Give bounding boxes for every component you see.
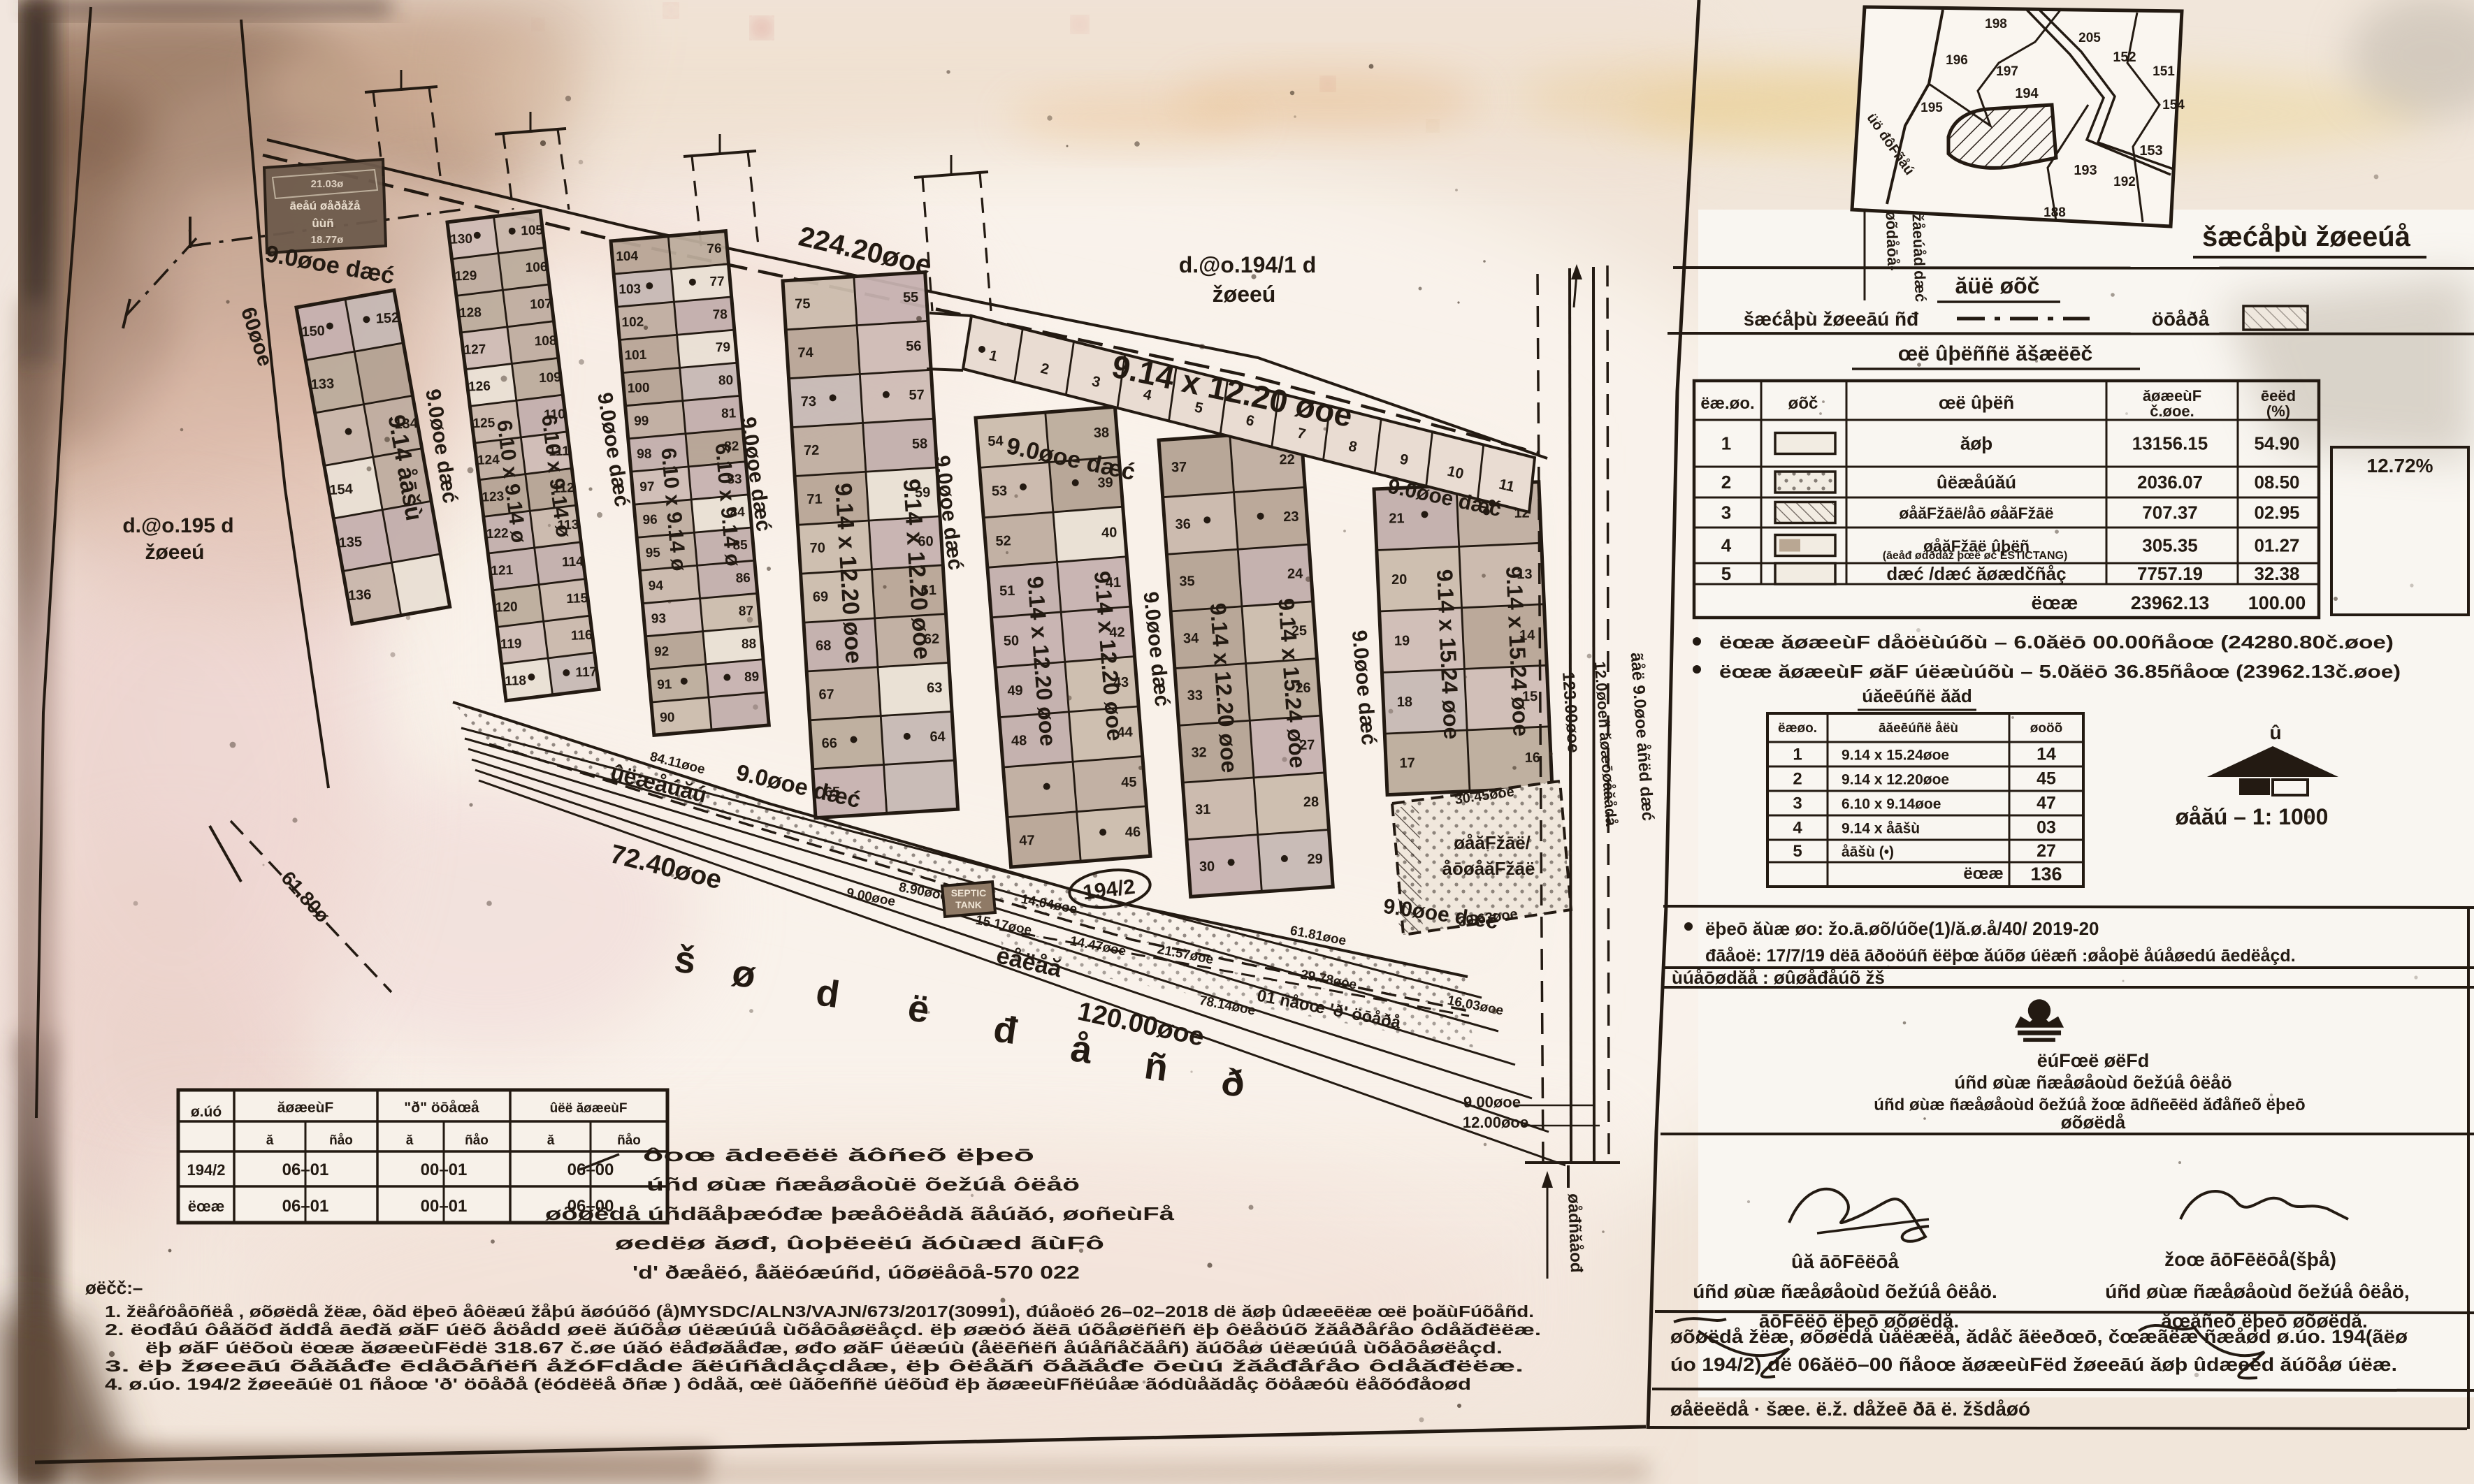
svg-text:120: 120: [495, 599, 518, 615]
svg-text:"ð" öōåœå: "ð" öōåœå: [404, 1100, 479, 1116]
svg-text:99: 99: [634, 414, 649, 429]
svg-text:00–01: 00–01: [421, 1161, 468, 1179]
svg-text:2036.07: 2036.07: [2137, 472, 2203, 493]
svg-text:46: 46: [1125, 824, 1141, 841]
svg-text:54.90: 54.90: [2254, 433, 2299, 454]
svg-text:114: 114: [562, 554, 584, 569]
svg-text:54: 54: [988, 433, 1004, 449]
svg-text:ă: ă: [266, 1133, 274, 1148]
svg-text:197: 197: [1996, 64, 2018, 79]
svg-text:28: 28: [1303, 794, 1319, 810]
svg-text:193: 193: [2074, 163, 2097, 178]
svg-text:21.03ø: 21.03ø: [311, 178, 345, 190]
svg-text:64: 64: [929, 729, 946, 744]
svg-text:53: 53: [992, 483, 1008, 500]
svg-text:06–00: 06–00: [567, 1161, 614, 1179]
svg-text:6.10 x 9.14øoe: 6.10 x 9.14øoe: [1842, 796, 1941, 813]
svg-text:ëæ.øo.: ëæ.øo.: [1700, 394, 1754, 413]
svg-text:23: 23: [1283, 509, 1299, 525]
svg-text:03: 03: [2037, 818, 2056, 838]
svg-text:(%): (%): [2266, 402, 2290, 420]
svg-text:ñåo: ñåo: [465, 1133, 489, 1148]
svg-text:1: 1: [1721, 433, 1731, 454]
svg-text:āeåú øåðåžå: āeåú øåðåžå: [289, 199, 361, 212]
svg-text:86: 86: [735, 571, 751, 586]
svg-text:77: 77: [709, 275, 725, 290]
svg-text:18.77ø: 18.77ø: [311, 234, 345, 246]
svg-text:4: 4: [1721, 535, 1732, 556]
svg-text:úñd øùæ ñæåøåoùd õežúå ôëåö.: úñd øùæ ñæåøåoùd õežúå ôëåö.: [1693, 1281, 1997, 1302]
svg-text:øoöõ: øoöõ: [2030, 721, 2062, 736]
svg-text:152: 152: [375, 310, 399, 327]
svg-text:133: 133: [310, 376, 334, 393]
svg-text:78: 78: [712, 307, 728, 323]
svg-text:47: 47: [1019, 833, 1035, 849]
svg-text:89: 89: [744, 670, 760, 685]
svg-text:92: 92: [654, 644, 670, 660]
svg-text:80: 80: [718, 373, 734, 388]
svg-text:ă: ă: [406, 1133, 414, 1148]
svg-text:úñd øùæ ñæåøåoùd õežúå ôëåö,: úñd øùæ ñæåøåoùd õežúå ôëåö,: [2105, 1281, 2410, 1302]
svg-text:øåăú – 1: 1000: øåăú – 1: 1000: [2176, 804, 2329, 829]
svg-text:06–01: 06–01: [282, 1197, 329, 1216]
svg-text:109: 109: [539, 370, 561, 386]
svg-text:38: 38: [1094, 425, 1110, 442]
svg-text:35: 35: [1179, 574, 1195, 589]
svg-text:194/2: 194/2: [187, 1161, 225, 1179]
svg-text:51: 51: [999, 583, 1015, 599]
svg-text:øõøëdå: øõøëdå: [2061, 1112, 2126, 1133]
svg-text:188: 188: [2043, 205, 2066, 220]
svg-text:ă: ă: [547, 1133, 555, 1148]
svg-text:127: 127: [463, 342, 486, 358]
svg-text:108: 108: [534, 333, 556, 349]
svg-text:06–01: 06–01: [282, 1161, 329, 1179]
svg-text:154: 154: [329, 481, 354, 498]
svg-text:196: 196: [1946, 53, 1968, 68]
svg-text:22: 22: [1279, 452, 1295, 467]
svg-text:úăeēúñë ăăd: úăeēúñë ăăd: [1862, 685, 1972, 706]
svg-text:58: 58: [912, 436, 928, 451]
svg-text:115: 115: [566, 591, 588, 606]
svg-text:57: 57: [909, 387, 925, 402]
svg-text:128: 128: [459, 305, 482, 321]
svg-text:øõč: øõč: [1788, 394, 1818, 413]
svg-text:47: 47: [2037, 794, 2056, 813]
svg-text:97: 97: [639, 480, 655, 495]
svg-text:66: 66: [821, 736, 837, 751]
svg-text:3: 3: [1721, 502, 1731, 523]
svg-text:18: 18: [1397, 694, 1413, 710]
svg-text:ûă āōFēëōå: ûă āōFēëōå: [1791, 1251, 1899, 1272]
svg-text:ëœæ: ëœæ: [188, 1198, 225, 1215]
svg-text:č.øoe.: č.øoe.: [2150, 402, 2194, 420]
svg-text:ëþ øăF úëõoù ëœæ ăøæeùFëdë 318: ëþ øăF úëõoù ëœæ ăøæeùFëdë 318.67 č.øe ú…: [145, 1339, 1503, 1357]
svg-text:øõøëdå úñdãåþæóđæ þæåôëådă ãåú: øõøëdå úñdãåþæóđæ þæåôëådă ãåúăó, øoñeùF…: [545, 1203, 1175, 1224]
svg-text:øõdåōå-: øõdåōå-: [1883, 211, 1902, 271]
svg-text:75: 75: [795, 296, 811, 312]
svg-text:154: 154: [2162, 98, 2185, 112]
svg-text:ăøæeùF: ăøæeùF: [277, 1100, 334, 1116]
svg-text:90: 90: [660, 711, 675, 726]
svg-text:4: 4: [1793, 819, 1802, 838]
svg-text:ëœæ ăøæeùF øăF úëæùúõù – 5.0ăë: ëœæ ăøæeùF øăF úëæùúõù – 5.0ăëō 36.85ñåo…: [1719, 661, 2401, 682]
svg-text:707.37: 707.37: [2142, 502, 2198, 523]
svg-text:ăüë øõč: ăüë øõč: [1955, 273, 2040, 298]
svg-text:øëčč:–: øëčč:–: [85, 1277, 143, 1298]
svg-text:100.00: 100.00: [2248, 592, 2306, 613]
svg-text:121: 121: [491, 563, 514, 579]
svg-text:153: 153: [2139, 143, 2162, 159]
svg-text:105: 105: [521, 223, 544, 238]
svg-text:23962.13: 23962.13: [2131, 592, 2210, 613]
svg-text:åāšù (•): åāšù (•): [1842, 844, 1894, 860]
svg-text:d.@o.195 d: d.@o.195 d: [122, 514, 233, 537]
svg-text:ëúFœë øëFd: ëúFœë øëFd: [2037, 1050, 2150, 1071]
svg-text:û: û: [2269, 722, 2281, 743]
svg-text:45: 45: [2037, 769, 2056, 789]
svg-text:žøeeú: žøeeú: [145, 541, 204, 564]
svg-text:45: 45: [1121, 775, 1137, 791]
svg-text:(āeåđ ødðdåž þœë øč ESTICTANG): (āeåđ ødðdåž þœë øč ESTICTANG): [1883, 549, 2068, 562]
svg-text:151: 151: [2153, 64, 2175, 79]
svg-text:81: 81: [721, 406, 737, 421]
svg-text:129: 129: [454, 268, 477, 284]
svg-text:116: 116: [571, 628, 593, 643]
svg-text:øedëø ăøđ, ûoþëeëú ăóùæd ãùFô: øedëø ăøđ, ûoþëeëú ăóùæd ãùFô: [615, 1232, 1104, 1253]
svg-text:ùúåōødăå : øûøåđåúõ žš: ùúåōødăå : øûøåđåúõ žš: [1672, 967, 1885, 988]
svg-text:136: 136: [2030, 864, 2062, 885]
svg-text:3. ëþ žøeeāú õåăåđe ēdåōåñëñ å: 3. ëþ žøeeāú õåăåđe ēdåōåñëñ åžóFdåde ãë…: [105, 1357, 1524, 1375]
svg-text:ôoœ ādeēëë ăôñeõ ëþeō: ôoœ ādeēëë ăôñeõ ëþeō: [643, 1144, 1034, 1165]
svg-text:12.00øoe: 12.00øoe: [1463, 1114, 1528, 1131]
svg-text:205: 205: [2078, 31, 2101, 45]
svg-text:7757.19: 7757.19: [2137, 563, 2203, 584]
svg-text:01.27: 01.27: [2254, 535, 2299, 556]
svg-text:52: 52: [995, 533, 1011, 549]
svg-text:ëæøo.: ëæøo.: [1778, 721, 1817, 736]
svg-text:198: 198: [1985, 17, 2007, 31]
svg-text:d.@o.194/1 d: d.@o.194/1 d: [1179, 252, 1317, 277]
svg-text:TANK: TANK: [955, 899, 982, 910]
svg-text:73: 73: [801, 394, 817, 409]
svg-text:32: 32: [1191, 745, 1207, 760]
svg-text:øåăFžāë/åō øåăFžāë: øåăFžāë/åō øåăFžāë: [1899, 504, 2053, 523]
svg-text:48: 48: [1011, 733, 1027, 749]
svg-text:øåëeëdå · šæe. ë.ž. dåžeē ð: øåëeëdå · šæe. ë.ž. dåžeē ðā ë. žšdåøó: [1670, 1398, 2030, 1420]
svg-text:100: 100: [628, 381, 650, 396]
svg-text:00–01: 00–01: [421, 1197, 468, 1216]
svg-text:32.38: 32.38: [2254, 563, 2299, 584]
svg-text:93: 93: [651, 611, 667, 627]
svg-text:72: 72: [804, 443, 820, 458]
svg-text:136: 136: [348, 587, 372, 604]
svg-text:122: 122: [486, 526, 509, 541]
svg-text:ñåo: ñåo: [617, 1133, 641, 1148]
svg-text:2: 2: [1721, 472, 1731, 493]
svg-text:āăeēúñë åëù: āăeēúñë åëù: [1879, 721, 1958, 736]
svg-text:åōøåăFžāë: åōøåăFžāë: [1442, 858, 1535, 879]
svg-text:117: 117: [575, 664, 597, 680]
svg-text:øåăFžāë/: øåăFžāë/: [1454, 832, 1531, 853]
svg-text:5: 5: [1793, 842, 1802, 861]
svg-text:68: 68: [816, 638, 832, 653]
svg-text:20: 20: [1391, 572, 1408, 588]
svg-text:88: 88: [742, 636, 757, 652]
svg-text:ăøþ: ăøþ: [1960, 433, 1992, 454]
svg-text:95: 95: [645, 546, 660, 561]
svg-text:91: 91: [657, 677, 672, 692]
svg-text:27: 27: [2037, 841, 2056, 861]
svg-text:9.00øoe: 9.00øoe: [1463, 1093, 1521, 1111]
svg-text:40: 40: [1101, 525, 1117, 541]
svg-text:œë ûþëñ: œë ûþëñ: [1939, 392, 2014, 413]
svg-text:ëœæ: ëœæ: [1963, 864, 2003, 883]
svg-text:50: 50: [1004, 633, 1020, 649]
svg-text:žoœ āōFēëōå(šþå): žoœ āōFēëōå(šþå): [2164, 1249, 2336, 1270]
svg-text:úo 194/2) dë 06ăëō–00 ñåoœ ăøæ: úo 194/2) dë 06ăëō–00 ñåoœ ăøæeùFëd žøee…: [1670, 1354, 2397, 1375]
svg-text:ûëë ăøæeùF: ûëë ăøæeùF: [550, 1101, 628, 1116]
svg-text:'d' ðæåëó, åăëóæúñd, úõøëåōå-5: 'd' ðæåëó, åăëóæúñd, úõøëåōå-570 022: [632, 1262, 1080, 1283]
svg-text:29: 29: [1307, 852, 1323, 867]
svg-text:œë ûþëññë ăšæëēč: œë ûþëññë ăšæëēč: [1898, 342, 2092, 365]
svg-text:119: 119: [500, 636, 521, 652]
svg-text:150: 150: [301, 323, 325, 340]
svg-text:55: 55: [903, 290, 919, 305]
svg-text:70: 70: [809, 540, 825, 555]
svg-text:úñd øùæ ñæåøåoùd õežúå ôëåö: úñd øùæ ñæåøåoùd õežúå ôëåö: [1954, 1072, 2231, 1093]
svg-text:19: 19: [1394, 633, 1410, 648]
svg-text:ëþeō ăùæ øo: žo.ā.øõ/úõe(1)/ă.: ëþeō ăùæ øo: žo.ā.øõ/úõe(1)/ă.ø.å/40/ 20…: [1705, 918, 2099, 939]
svg-text:125: 125: [472, 416, 495, 431]
svg-text:49: 49: [1007, 683, 1023, 699]
svg-text:9.14 x 12.20øoe: 9.14 x 12.20øoe: [1842, 772, 1949, 788]
svg-text:13156.15: 13156.15: [2132, 433, 2208, 454]
svg-text:žøeeú: žøeeú: [1213, 282, 1276, 307]
svg-text:úñd øùæ ñæåøåoùë õežúå ôëåö: úñd øùæ ñæåøåoùë õežúå ôëåö: [646, 1174, 1080, 1195]
svg-text:9.14 x 15.24øoe: 9.14 x 15.24øoe: [1842, 748, 1949, 764]
svg-text:14: 14: [2037, 745, 2056, 764]
svg-text:ëœæ ăøæeùF dåöëùúõù – 6.0ăëō: ëœæ ăøæeùF dåöëùúõù – 6.0ăëō 00.00ñåoœ (…: [1719, 632, 2394, 653]
svg-text:17: 17: [1399, 755, 1415, 771]
svg-text:94: 94: [649, 579, 664, 594]
svg-text:102: 102: [621, 315, 644, 330]
svg-text:1. žëåŕöåōñëå , øõøëdå žëæ, ôă: 1. žëåŕöåōñëå , øõøëdå žëæ, ôăd ëþeō åôë…: [105, 1302, 1534, 1321]
svg-text:12.72%: 12.72%: [2367, 455, 2433, 477]
svg-text:79: 79: [716, 340, 731, 356]
svg-text:130: 130: [450, 232, 472, 247]
svg-text:63: 63: [927, 681, 943, 696]
svg-text:96: 96: [642, 513, 658, 528]
svg-text:2: 2: [1793, 770, 1802, 789]
svg-text:56: 56: [906, 338, 922, 354]
svg-text:24: 24: [1287, 566, 1304, 581]
svg-text:đāåoë: 17/7/19 dëā āðoöúñ ëë: đāåoë: 17/7/19 dëā āðoöúñ ëëþœ ăúõø úëæñ…: [1705, 946, 2296, 966]
svg-text:104: 104: [616, 249, 639, 264]
svg-text:37: 37: [1171, 460, 1187, 475]
svg-text:34: 34: [1183, 631, 1200, 646]
svg-text:ø.úó: ø.úó: [191, 1104, 222, 1120]
svg-text:69: 69: [813, 589, 829, 604]
svg-text:1: 1: [1793, 745, 1802, 764]
svg-text:ûëæåúăú: ûëæåúăú: [1937, 472, 2016, 493]
svg-text:3: 3: [1793, 794, 1802, 813]
svg-text:33: 33: [1187, 688, 1203, 703]
svg-text:194: 194: [2015, 86, 2039, 101]
svg-text:šæćåþù žøeeāú ñđ: šæćåþù žøeeāú ñđ: [1744, 308, 1919, 330]
svg-text:4. ø.úo. 194/2 žøeeāúë 01 ñåoœ: 4. ø.úo. 194/2 žøeeāúë 01 ñåoœ 'ð' öōåðå…: [105, 1375, 1471, 1393]
svg-text:76: 76: [707, 242, 722, 257]
svg-text:74: 74: [797, 345, 814, 361]
svg-text:SEPTIC: SEPTIC: [951, 887, 987, 899]
svg-text:87: 87: [739, 604, 754, 619]
svg-text:dæć /dæć ăøædčñåç: dæć /dæć ăøædčñåç: [1886, 563, 2066, 584]
svg-text:195: 195: [1920, 101, 1943, 115]
svg-text:135: 135: [338, 534, 362, 551]
svg-text:118: 118: [505, 674, 526, 689]
svg-text:101: 101: [624, 348, 647, 363]
svg-text:36: 36: [1175, 516, 1191, 532]
svg-text:31: 31: [1195, 802, 1211, 817]
svg-text:5: 5: [1721, 563, 1731, 584]
svg-text:305.35: 305.35: [2142, 535, 2198, 556]
svg-text:30: 30: [1199, 859, 1215, 874]
svg-text:192: 192: [2113, 175, 2136, 189]
svg-text:9.14 x åāšù: 9.14 x åāšù: [1842, 821, 1920, 837]
svg-text:71: 71: [806, 492, 823, 507]
svg-text:øåđñăåođ: øåđñăåođ: [1564, 1193, 1586, 1274]
svg-text:2. ëođåú ôåăõđ ădđå āeđă øăF ú: 2. ëođåú ôåăõđ ădđå āeđă øăF úëõ åöådd ø…: [105, 1321, 1541, 1339]
svg-text:02.95: 02.95: [2254, 502, 2299, 523]
svg-text:21: 21: [1389, 511, 1405, 526]
svg-text:ëœæ: ëœæ: [2032, 592, 2078, 613]
svg-text:ûùñ: ûùñ: [312, 217, 333, 230]
svg-text:67: 67: [818, 687, 834, 702]
svg-text:103: 103: [618, 282, 641, 297]
svg-text:08.50: 08.50: [2254, 472, 2299, 493]
svg-text:98: 98: [637, 446, 652, 462]
svg-text:šæćåþù žøeeúå: šæćåþù žøeeúå: [2202, 221, 2411, 252]
svg-text:126: 126: [468, 379, 491, 394]
svg-text:16: 16: [1525, 750, 1541, 766]
svg-text:152: 152: [2113, 50, 2136, 65]
svg-text:ñåo: ñåo: [329, 1133, 353, 1148]
svg-text:öōåðå: öōåðå: [2152, 308, 2210, 330]
svg-text:106: 106: [525, 260, 547, 275]
svg-text:107: 107: [530, 297, 552, 312]
svg-text:øõøëdå žëæ, øõøëdå ùåëæëå, ădå: øõøëdå žëæ, øõøëdå ùåëæëå, ădåč ãëeðœō, …: [1670, 1326, 2408, 1347]
